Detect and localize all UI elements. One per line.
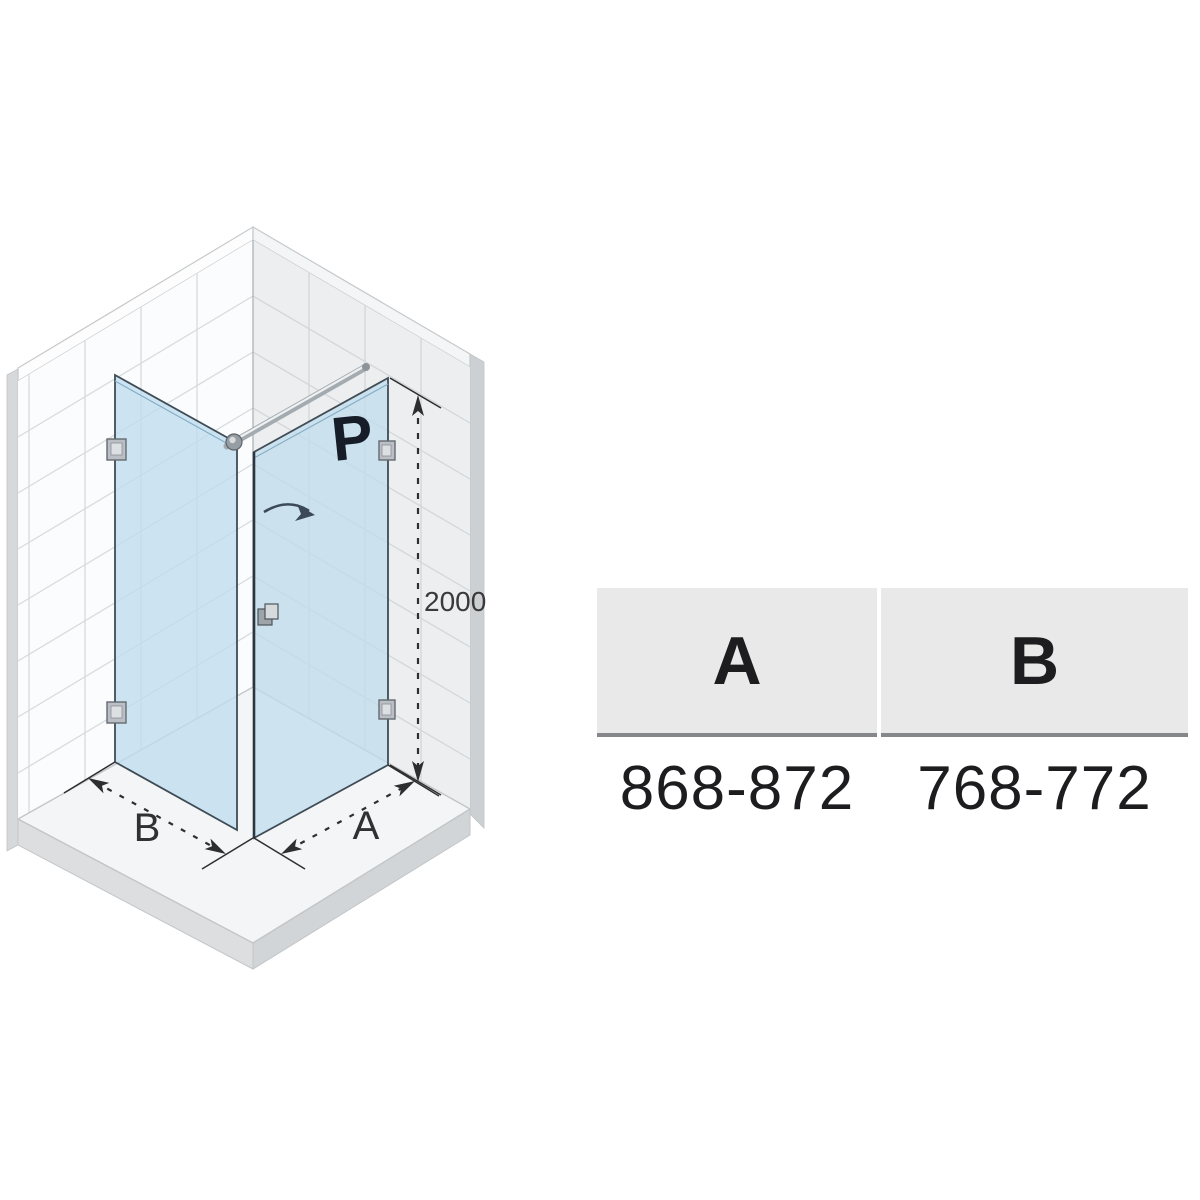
spec-table: A B 868-872 768-772	[597, 588, 1188, 824]
door-hinge-top	[379, 441, 395, 460]
door-hinge-bottom	[379, 700, 395, 719]
wall-bracket-bottom	[107, 702, 126, 723]
spec-table-value-b: 768-772	[881, 753, 1188, 824]
spec-table-header-b: B	[881, 588, 1188, 737]
figure-canvas: P 2000 B A	[0, 0, 1200, 1200]
spec-table-header-row: A B	[597, 588, 1188, 737]
spec-table-value-row: 868-872 768-772	[597, 753, 1188, 824]
spec-table-header-a: A	[597, 588, 877, 737]
side-glass-panel	[115, 375, 237, 830]
side-a-label: A	[353, 804, 380, 848]
spec-table-value-a: 868-872	[597, 753, 877, 824]
side-b-label: B	[134, 806, 161, 850]
door-position-label: P	[328, 402, 376, 475]
support-bar-wall-mount	[362, 363, 370, 371]
height-value: 2000	[424, 586, 486, 617]
wall-bracket-top	[107, 439, 126, 460]
left-wall-outer-edge	[7, 369, 18, 851]
